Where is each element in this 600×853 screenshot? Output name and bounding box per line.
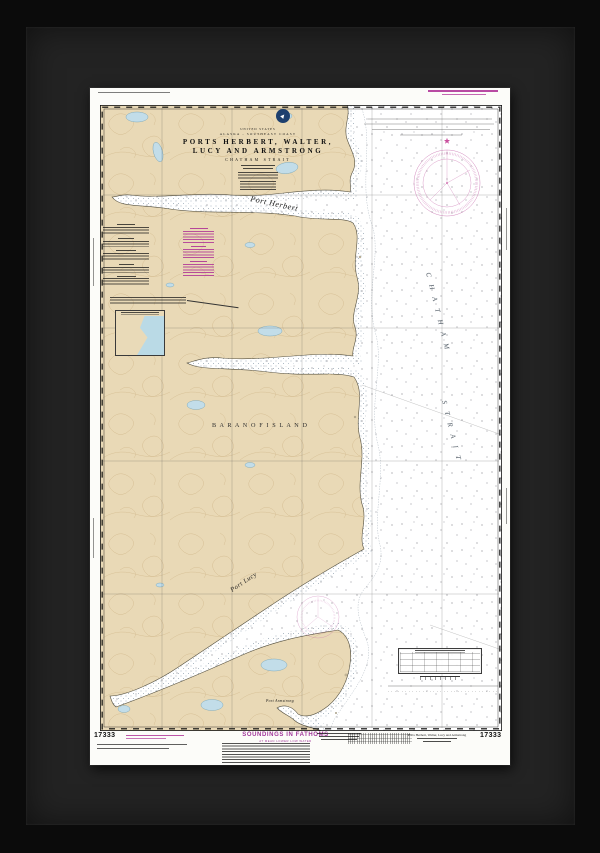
bottom-paragraph-note [222,743,310,763]
inset-plan-water [134,316,164,355]
frame-mat: Port Herbert B A R A N O F I S L A N D C… [26,27,575,825]
inset-plan [115,310,165,356]
corrections-note [97,744,187,745]
inset-plan-title [121,312,159,315]
label-port-armstrong: Port Armstrong [265,699,294,703]
datum-note [238,172,278,179]
chart-paper: Port Herbert B A R A N O F I S L A N D C… [90,88,510,765]
left-margin-note-2 [93,518,94,558]
chart-title-line2: LUCY AND ARMSTRONG [173,147,343,156]
noaa-bird-icon [280,113,286,119]
tide-table-grid [400,652,480,672]
magenta-note-block [183,228,214,276]
scale-statement [241,165,275,166]
corrections-note-2 [97,748,169,749]
tide-table [398,648,482,674]
notes-column [103,224,149,286]
chart-number-left: 17333 [94,732,115,739]
footer-chart-title: Ports Herbert, Walter, Lucy and Armstron… [400,733,474,737]
chart-canvas: Port Herbert B A R A N O F I S L A N D C… [100,105,502,731]
title-country: UNITED STATES [173,127,343,131]
edition-note-magenta-2 [126,738,166,739]
framed-chart-photo: Port Herbert B A R A N O F I S L A N D C… [0,0,600,853]
authority-note [240,181,276,190]
top-right-title-repeat-2 [442,94,486,95]
caution-note [110,297,186,304]
edition-note-magenta [126,735,184,736]
top-left-credit-line [98,92,170,94]
top-right-title-repeat [428,90,498,92]
chart-title-line1: PORTS HERBERT, WALTER, [173,138,343,147]
inset-scale-bar [420,676,460,680]
title-block: UNITED STATES ALASKA - SOUTHEAST COAST P… [173,127,343,190]
footer-title-block: Ports Herbert, Walter, Lucy and Armstron… [400,733,474,744]
projection-statement [243,168,273,169]
right-margin-note [506,208,507,250]
title-region: ALASKA - SOUTHEAST COAST [173,132,343,136]
chart-number-right: 17333 [480,732,501,739]
chart-subtitle: CHATHAM STRAIT [173,157,343,162]
label-baranof-island: B A R A N O F I S L A N D [212,422,308,429]
left-margin-note [93,238,94,286]
right-margin-note-2 [506,488,507,524]
noaa-logo [276,109,290,123]
